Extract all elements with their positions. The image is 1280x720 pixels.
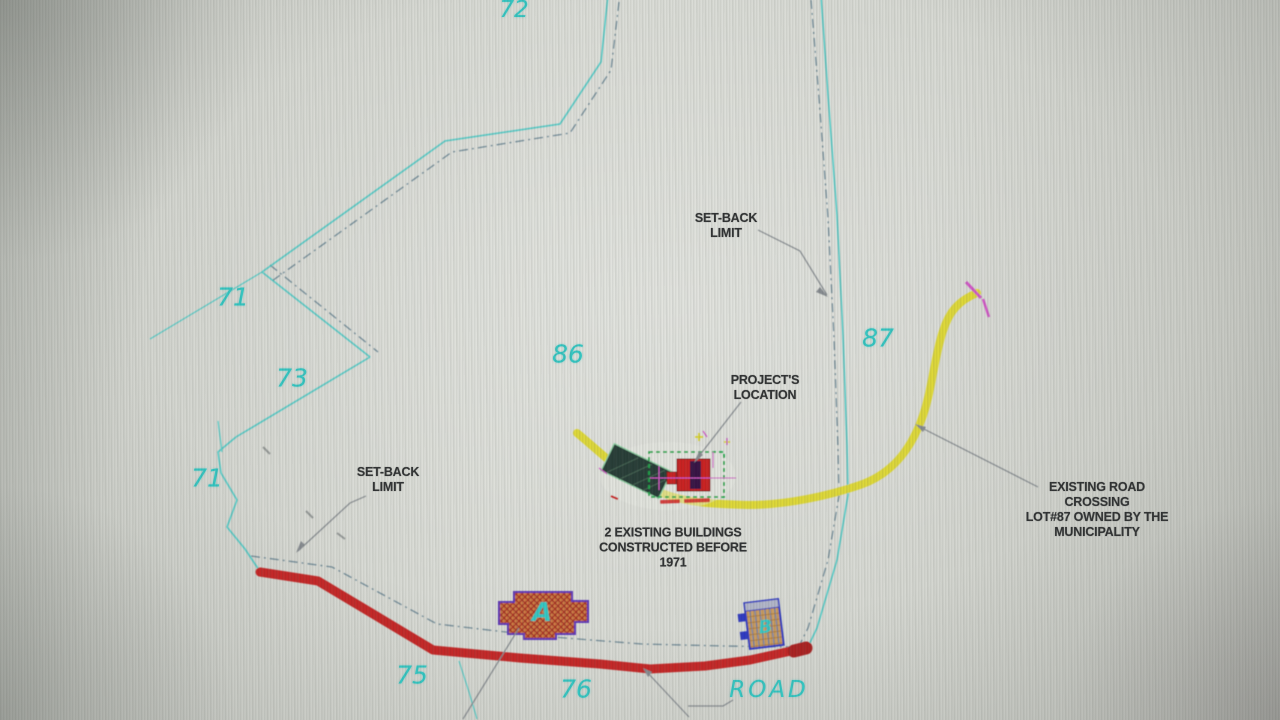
- red-road-end-cap: [794, 648, 806, 651]
- boundary-top-left: [262, 0, 608, 272]
- site-plan-photo: A B: [0, 0, 1280, 720]
- lot-label-73: 73: [276, 364, 308, 393]
- lot-label-86: 86: [552, 340, 584, 369]
- annotation-line: MUNICIPALITY: [1026, 525, 1169, 540]
- lot-label-71-upper: 71: [217, 283, 249, 312]
- leader-setback-left: [298, 496, 366, 551]
- lot-label-76: 76: [560, 675, 592, 704]
- annotation-project-location: PROJECT'S LOCATION: [731, 373, 800, 403]
- building-b-label: B: [757, 616, 773, 639]
- leader-road-arrow-shaft: [645, 670, 689, 717]
- leader-project-location: [696, 402, 741, 460]
- leader-road-label: [688, 700, 733, 706]
- photo-specks: [263, 447, 345, 539]
- annotation-line: LIMIT: [695, 226, 757, 241]
- annotation-line: PROJECT'S: [731, 373, 800, 388]
- annotation-existing-road-crossing: EXISTING ROAD CROSSING LOT#87 OWNED BY T…: [1026, 480, 1169, 540]
- site-plan-linework: A B: [0, 0, 1280, 720]
- setback-dash-lot71-73: [270, 265, 378, 352]
- annotation-line: LIMIT: [357, 480, 419, 495]
- boundary-zig-right: [262, 272, 370, 357]
- lot-label-87: 87: [862, 324, 894, 353]
- annotation-line: SET-BACK: [357, 465, 419, 480]
- lot-label-75: 75: [396, 661, 428, 690]
- annotation-line: EXISTING ROAD: [1026, 480, 1169, 495]
- annotation-line: 1971: [599, 556, 747, 571]
- road-label: ROAD: [729, 677, 809, 703]
- lot-label-72: 72: [499, 0, 528, 23]
- building-b: B: [736, 599, 783, 650]
- boundary-left-edge: [218, 437, 259, 570]
- building-a-label: A: [530, 598, 552, 628]
- annotation-line: LOCATION: [731, 388, 800, 403]
- boundary-left-notch: [218, 421, 222, 452]
- leader-existing-road: [918, 426, 1038, 487]
- leader-building-a: [463, 628, 519, 719]
- annotation-line: 2 EXISTING BUILDINGS: [599, 526, 747, 541]
- annotation-line: SET-BACK: [695, 211, 757, 226]
- annotation-line: CONSTRUCTED BEFORE: [599, 541, 747, 556]
- leader-setback-left-arrow: [296, 541, 305, 553]
- setback-dashdot-lines: [251, 0, 839, 650]
- leader-setback-right: [758, 230, 827, 295]
- building-a: A: [499, 592, 588, 639]
- annotation-setback-limit-left: SET-BACK LIMIT: [357, 465, 419, 495]
- annotation-line: CROSSING: [1026, 495, 1169, 510]
- boundary-right: [806, 0, 848, 651]
- annotation-existing-buildings: 2 EXISTING BUILDINGS CONSTRUCTED BEFORE …: [599, 526, 747, 571]
- annotation-line: LOT#87 OWNED BY THE: [1026, 510, 1169, 525]
- annotation-setback-limit-right: SET-BACK LIMIT: [695, 211, 757, 241]
- project-location-detail: [599, 431, 736, 510]
- setback-dash-right: [797, 0, 839, 650]
- lot-label-71-lower: 71: [191, 464, 223, 493]
- leader-setback-right-arrow: [816, 287, 828, 297]
